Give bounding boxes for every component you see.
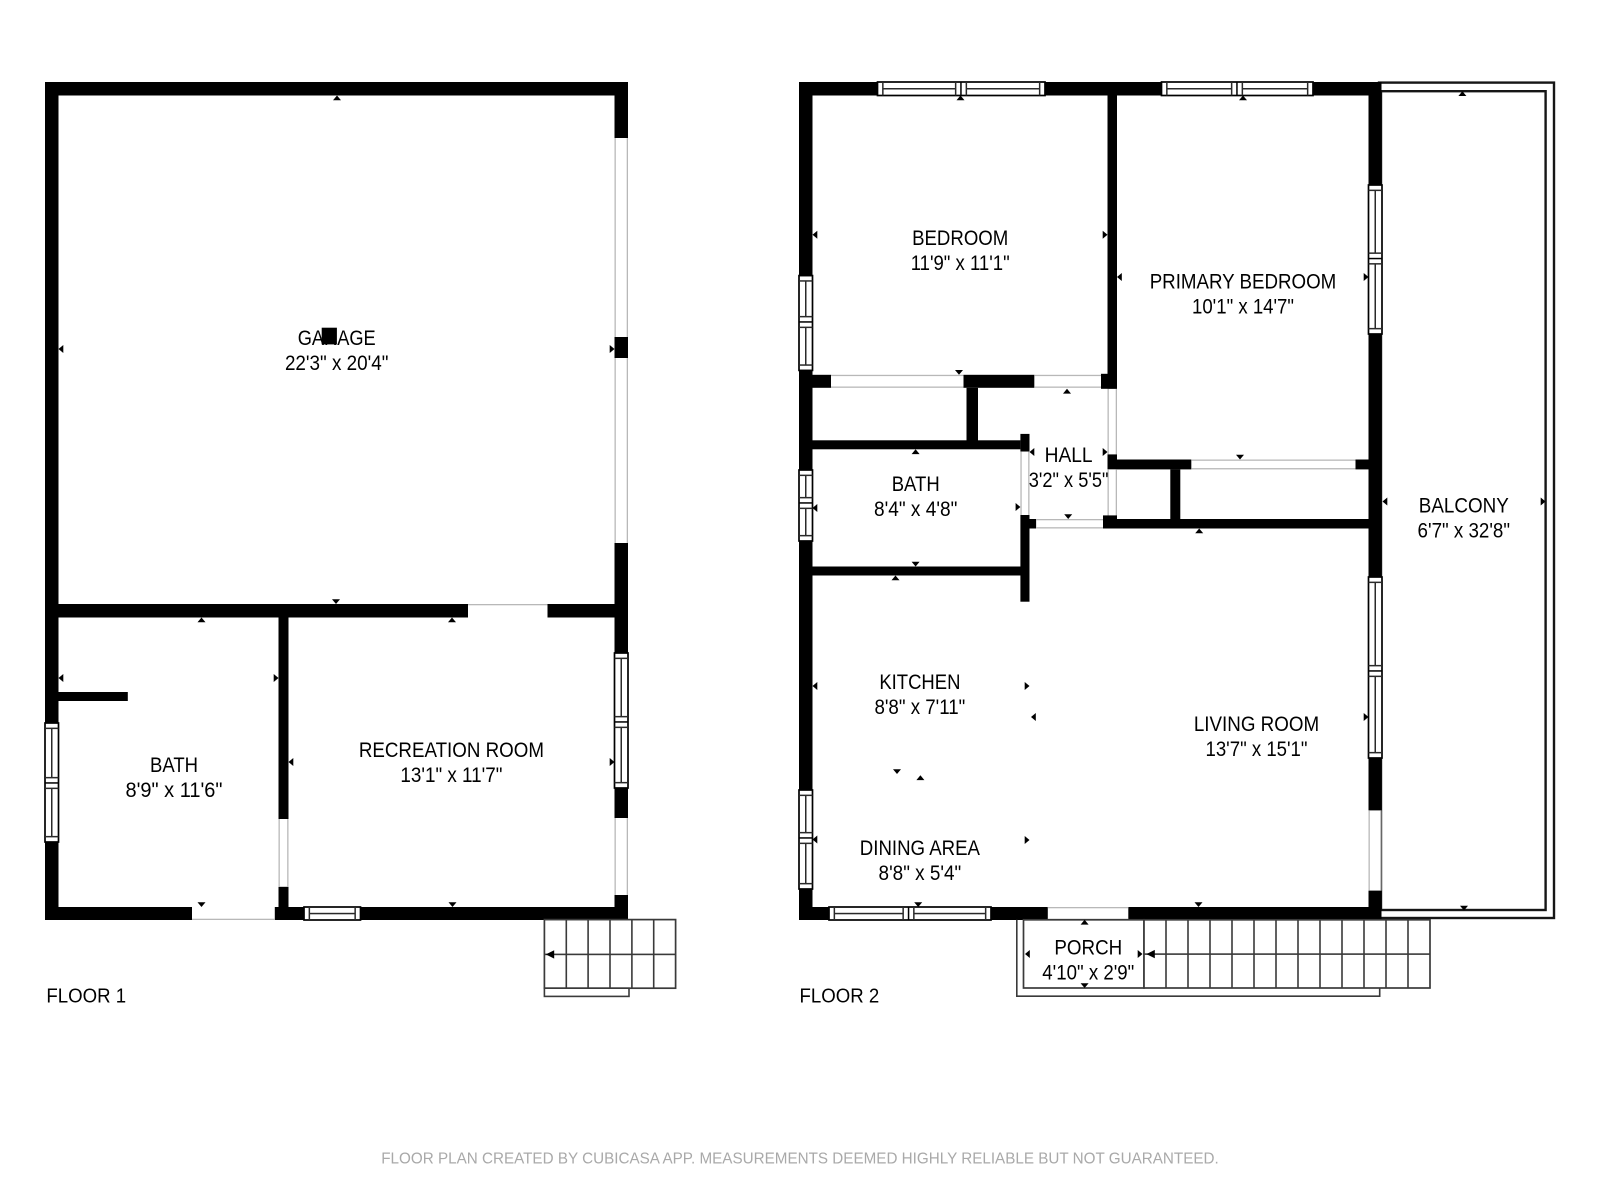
- svg-text:6'7" x 32'8": 6'7" x 32'8": [1418, 519, 1511, 543]
- svg-text:BEDROOM: BEDROOM: [912, 226, 1008, 250]
- svg-text:PORCH: PORCH: [1054, 936, 1122, 960]
- svg-text:10'1" x 14'7": 10'1" x 14'7": [1192, 295, 1294, 319]
- svg-text:13'1" x 11'7": 13'1" x 11'7": [400, 763, 502, 787]
- svg-text:BALCONY: BALCONY: [1419, 494, 1509, 518]
- svg-text:4'10" x 2'9": 4'10" x 2'9": [1042, 961, 1134, 985]
- svg-text:PRIMARY BEDROOM: PRIMARY BEDROOM: [1150, 270, 1337, 294]
- svg-text:LIVING ROOM: LIVING ROOM: [1194, 712, 1319, 736]
- svg-text:8'4" x 4'8": 8'4" x 4'8": [874, 497, 957, 521]
- svg-text:KITCHEN: KITCHEN: [879, 670, 960, 694]
- svg-text:22'3" x 20'4": 22'3" x 20'4": [285, 351, 389, 375]
- svg-text:FLOOR 1: FLOOR 1: [46, 984, 126, 1007]
- svg-text:DINING AREA: DINING AREA: [860, 836, 981, 860]
- svg-text:13'7" x 15'1": 13'7" x 15'1": [1206, 737, 1308, 761]
- svg-text:FLOOR 2: FLOOR 2: [800, 984, 880, 1007]
- svg-text:3'2" x 5'5": 3'2" x 5'5": [1029, 468, 1109, 492]
- svg-text:RECREATION ROOM: RECREATION ROOM: [359, 738, 544, 762]
- svg-text:11'9" x 11'1": 11'9" x 11'1": [911, 251, 1010, 275]
- svg-text:FLOOR PLAN CREATED BY CUBICASA: FLOOR PLAN CREATED BY CUBICASA APP. MEAS…: [381, 1151, 1219, 1168]
- svg-text:8'9" x 11'6": 8'9" x 11'6": [126, 778, 223, 802]
- svg-text:BATH: BATH: [150, 753, 198, 777]
- svg-text:HALL: HALL: [1045, 443, 1093, 467]
- svg-text:BATH: BATH: [892, 472, 940, 496]
- svg-text:8'8" x 7'11": 8'8" x 7'11": [874, 695, 965, 719]
- svg-text:8'8" x 5'4": 8'8" x 5'4": [879, 861, 962, 885]
